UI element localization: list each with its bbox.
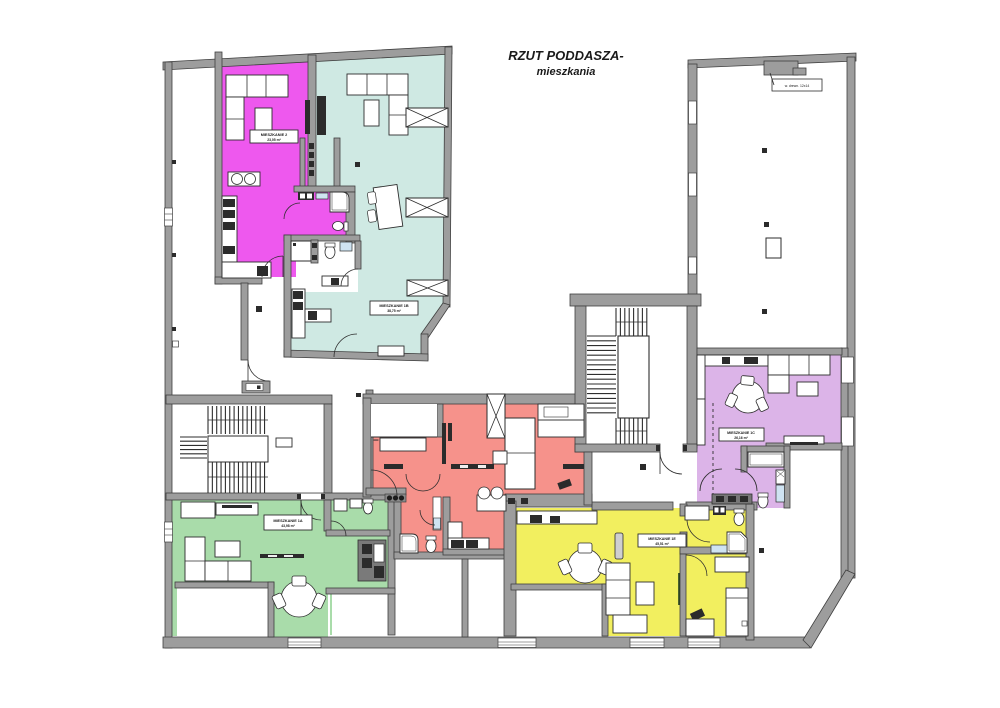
svg-text:w. drewn. 12x14: w. drewn. 12x14 [785,84,810,88]
svg-text:mieszkania: mieszkania [537,66,596,78]
svg-text:26,16 m²: 26,16 m² [734,436,748,440]
svg-text:43,98 m²: 43,98 m² [281,524,295,528]
svg-text:RZUT PODDASZA-: RZUT PODDASZA- [508,48,624,63]
svg-text:MIESZKANIE 1C: MIESZKANIE 1C [727,431,755,435]
svg-text:38,75 m²: 38,75 m² [387,309,401,313]
svg-text:MIESZKANIE 2: MIESZKANIE 2 [261,133,288,137]
svg-text:MIESZKANIE 1E: MIESZKANIE 1E [648,537,676,541]
svg-text:23,05 m²: 23,05 m² [267,138,281,142]
svg-text:MIESZKANIE 1A: MIESZKANIE 1A [273,519,303,523]
svg-text:45,51 m²: 45,51 m² [655,542,669,546]
svg-text:MIESZKANIE 1B: MIESZKANIE 1B [379,304,409,308]
